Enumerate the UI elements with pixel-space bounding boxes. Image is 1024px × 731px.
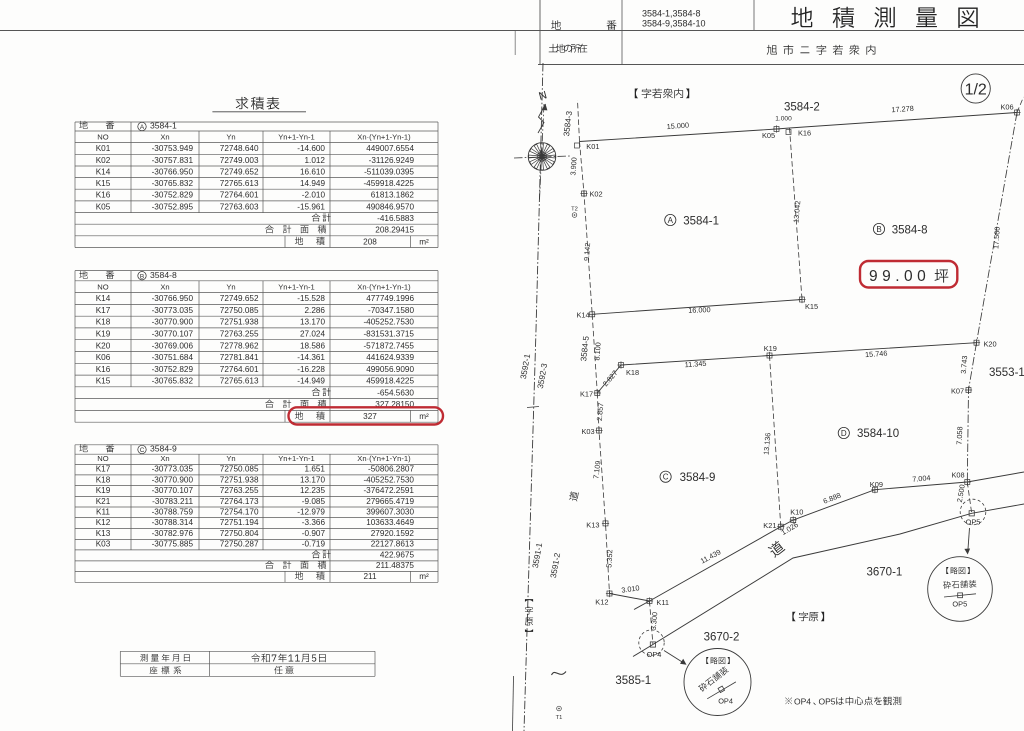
svg-text:K05: K05 — [96, 202, 111, 211]
svg-text:72781.841: 72781.841 — [220, 353, 259, 362]
svg-text:K01: K01 — [586, 142, 599, 151]
svg-text:-50806.2807: -50806.2807 — [368, 465, 414, 474]
svg-text:-459918.4225: -459918.4225 — [363, 179, 414, 188]
svg-text:72750.085: 72750.085 — [220, 465, 259, 474]
svg-text:OP5: OP5 — [952, 600, 967, 609]
svg-text:13.170: 13.170 — [300, 318, 325, 327]
svg-text:K03: K03 — [582, 427, 595, 436]
svg-text:16.610: 16.610 — [300, 167, 325, 176]
svg-text:-30782.976: -30782.976 — [152, 529, 194, 538]
svg-text:72764.173: 72764.173 — [220, 497, 259, 506]
svg-text:Xn: Xn — [160, 282, 169, 291]
svg-text:3.743: 3.743 — [959, 355, 970, 374]
svg-text:490846.9570: 490846.9570 — [366, 202, 414, 211]
svg-text:A: A — [140, 124, 145, 131]
svg-text:72751.938: 72751.938 — [220, 318, 259, 327]
svg-text:1.000: 1.000 — [775, 116, 792, 123]
svg-text:-30773.035: -30773.035 — [152, 465, 194, 474]
svg-text:3584-8: 3584-8 — [892, 225, 928, 237]
svg-text:K13: K13 — [586, 521, 599, 530]
svg-text:15.746: 15.746 — [865, 349, 888, 360]
svg-text:72778.962: 72778.962 — [220, 341, 259, 350]
svg-text:K17: K17 — [96, 465, 111, 474]
svg-text:Yn: Yn — [226, 132, 235, 141]
svg-text:-30775.885: -30775.885 — [152, 540, 194, 549]
svg-text:K19: K19 — [764, 344, 777, 353]
svg-text:3553-1: 3553-1 — [989, 367, 1024, 379]
svg-text:17.278: 17.278 — [891, 104, 914, 115]
svg-text:-654.5630: -654.5630 — [377, 388, 414, 397]
svg-text:-30752.829: -30752.829 — [152, 365, 194, 374]
svg-text:C: C — [140, 447, 145, 454]
svg-text:327: 327 — [363, 412, 377, 421]
svg-text:72749.652: 72749.652 — [220, 294, 259, 303]
svg-text:399607.3030: 399607.3030 — [366, 507, 414, 516]
svg-text:Xn·(Yn+1-Yn-1): Xn·(Yn+1-Yn-1) — [357, 454, 411, 463]
svg-text:72763.255: 72763.255 — [220, 330, 259, 339]
svg-text:72750.085: 72750.085 — [220, 306, 259, 315]
svg-text:72751.938: 72751.938 — [220, 475, 259, 484]
svg-text:-3.366: -3.366 — [302, 518, 326, 527]
svg-text:3.300: 3.300 — [649, 612, 660, 631]
svg-text:A: A — [668, 216, 674, 225]
svg-text:-16.228: -16.228 — [297, 365, 325, 374]
svg-text:K19: K19 — [96, 486, 111, 495]
svg-text:K18: K18 — [96, 318, 111, 327]
svg-text:2.286: 2.286 — [305, 306, 326, 315]
svg-text:3584-9: 3584-9 — [150, 444, 177, 454]
svg-text:-15.961: -15.961 — [297, 202, 325, 211]
svg-text:9.142: 9.142 — [582, 242, 592, 261]
svg-text:22127.8613: 22127.8613 — [371, 540, 415, 549]
svg-text:72764.601: 72764.601 — [220, 365, 259, 374]
svg-text:K14: K14 — [577, 311, 590, 320]
svg-text:K16: K16 — [96, 365, 111, 374]
svg-text:72765.613: 72765.613 — [220, 377, 259, 386]
svg-text:-2.010: -2.010 — [302, 191, 326, 200]
svg-text:K05: K05 — [762, 131, 775, 140]
svg-text:3584-2: 3584-2 — [784, 102, 820, 114]
svg-text:Yn+1-Yn-1: Yn+1-Yn-1 — [278, 454, 315, 463]
svg-text:3584-1,3584-8: 3584-1,3584-8 — [642, 9, 701, 19]
svg-text:Xn: Xn — [160, 132, 169, 141]
svg-text:K16: K16 — [798, 129, 811, 138]
svg-text:72764.601: 72764.601 — [220, 191, 259, 200]
svg-text:Xn·(Yn+1-Yn-1): Xn·(Yn+1-Yn-1) — [357, 282, 411, 291]
svg-text:208.29415: 208.29415 — [375, 226, 414, 235]
svg-text:459918.4225: 459918.4225 — [366, 377, 414, 386]
svg-text:2.857: 2.857 — [595, 402, 606, 421]
svg-text:Xn: Xn — [160, 454, 169, 463]
svg-text:-30769.006: -30769.006 — [152, 341, 194, 350]
svg-text:422.9675: 422.9675 — [380, 551, 415, 560]
svg-text:-15.528: -15.528 — [297, 294, 325, 303]
svg-text:72751.194: 72751.194 — [220, 518, 259, 527]
svg-text:3670-2: 3670-2 — [704, 632, 740, 644]
svg-text:3584-1: 3584-1 — [150, 120, 177, 130]
svg-text:-30770.900: -30770.900 — [152, 475, 194, 484]
svg-text:Yn: Yn — [226, 454, 235, 463]
svg-text:-70347.1580: -70347.1580 — [368, 306, 414, 315]
svg-text:15.000: 15.000 — [666, 121, 689, 132]
svg-text:-30770.107: -30770.107 — [152, 486, 194, 495]
svg-text:3584-9: 3584-9 — [680, 472, 716, 484]
svg-text:K06: K06 — [96, 353, 111, 362]
svg-text:K15: K15 — [96, 377, 111, 386]
svg-text:-416.5883: -416.5883 — [377, 214, 414, 223]
svg-text:K12: K12 — [595, 598, 608, 607]
svg-text:-30770.900: -30770.900 — [152, 318, 194, 327]
svg-text:12.235: 12.235 — [300, 486, 325, 495]
svg-text:103633.4649: 103633.4649 — [366, 518, 414, 527]
svg-text:m²: m² — [419, 237, 429, 246]
svg-text:-30773.035: -30773.035 — [152, 306, 194, 315]
svg-text:72765.613: 72765.613 — [220, 179, 259, 188]
svg-text:Yn+1-Yn-1: Yn+1-Yn-1 — [278, 282, 315, 291]
svg-text:K01: K01 — [96, 144, 111, 153]
svg-text:72754.170: 72754.170 — [220, 507, 259, 516]
svg-text:99.00: 99.00 — [869, 268, 930, 285]
svg-text:61813.1862: 61813.1862 — [371, 191, 415, 200]
svg-text:3670-1: 3670-1 — [867, 567, 903, 579]
svg-text:1/2: 1/2 — [965, 82, 987, 99]
svg-text:-30751.684: -30751.684 — [152, 353, 194, 362]
svg-text:K14: K14 — [96, 294, 111, 303]
svg-text:499056.9090: 499056.9090 — [366, 365, 414, 374]
svg-text:17.560: 17.560 — [991, 226, 1002, 249]
svg-text:-30757.831: -30757.831 — [152, 156, 194, 165]
svg-text:3584-9,3584-10: 3584-9,3584-10 — [642, 19, 706, 29]
svg-text:5.352: 5.352 — [604, 549, 614, 568]
svg-text:16.000: 16.000 — [688, 305, 711, 315]
svg-text:-511039.0395: -511039.0395 — [364, 167, 414, 176]
svg-text:K17: K17 — [580, 390, 593, 399]
svg-text:K15: K15 — [805, 302, 818, 311]
svg-text:T2: T2 — [571, 207, 578, 213]
svg-text:-571872.7455: -571872.7455 — [363, 341, 414, 350]
svg-text:27.024: 27.024 — [300, 330, 325, 339]
svg-text:K08: K08 — [952, 471, 965, 480]
svg-text:C: C — [663, 473, 669, 482]
svg-text:72750.287: 72750.287 — [220, 540, 259, 549]
svg-text:72749.003: 72749.003 — [220, 156, 259, 165]
svg-text:K12: K12 — [96, 518, 111, 527]
svg-text:3585-1: 3585-1 — [615, 675, 651, 687]
svg-text:K20: K20 — [96, 341, 111, 350]
svg-text:B: B — [140, 274, 144, 281]
svg-text:OP4: OP4 — [718, 696, 733, 705]
svg-text:-30752.895: -30752.895 — [152, 202, 194, 211]
svg-text:-30788.314: -30788.314 — [152, 518, 194, 527]
svg-text:K13: K13 — [96, 529, 111, 538]
svg-text:72750.804: 72750.804 — [220, 529, 259, 538]
svg-text:-376472.2591: -376472.2591 — [363, 486, 414, 495]
svg-text:NO: NO — [97, 282, 108, 291]
svg-text:Xn·(Yn+1-Yn-1): Xn·(Yn+1-Yn-1) — [357, 132, 411, 141]
svg-text:3584-8: 3584-8 — [150, 270, 177, 280]
svg-text:m²: m² — [419, 572, 429, 581]
svg-text:441624.9339: 441624.9339 — [366, 353, 414, 362]
svg-text:72763.603: 72763.603 — [220, 202, 259, 211]
svg-text:K10: K10 — [790, 508, 803, 517]
svg-text:208: 208 — [363, 237, 377, 246]
svg-text:8.100: 8.100 — [592, 342, 602, 361]
svg-text:OP5: OP5 — [966, 518, 981, 527]
svg-text:211: 211 — [363, 572, 376, 581]
svg-text:3584-1: 3584-1 — [683, 215, 719, 227]
svg-text:27920.1592: 27920.1592 — [371, 529, 415, 538]
svg-text:-30753.949: -30753.949 — [152, 144, 194, 153]
svg-text:3584-10: 3584-10 — [857, 428, 899, 440]
svg-text:-30765.832: -30765.832 — [152, 179, 194, 188]
svg-text:-30766.950: -30766.950 — [152, 167, 194, 176]
svg-text:K18: K18 — [96, 475, 111, 484]
svg-text:7.058: 7.058 — [955, 426, 965, 445]
svg-text:Yn+1-Yn-1: Yn+1-Yn-1 — [278, 132, 315, 141]
svg-text:-30770.107: -30770.107 — [152, 330, 194, 339]
svg-text:K15: K15 — [96, 179, 111, 188]
svg-text:D: D — [841, 429, 847, 438]
svg-text:477749.1996: 477749.1996 — [366, 294, 414, 303]
svg-text:OP4: OP4 — [647, 650, 662, 659]
svg-text:K06: K06 — [1001, 103, 1014, 112]
svg-text:K21: K21 — [763, 521, 776, 530]
svg-text:NO: NO — [97, 454, 108, 463]
svg-text:3.900: 3.900 — [568, 157, 578, 176]
svg-text:449007.6554: 449007.6554 — [366, 144, 414, 153]
svg-text:K18: K18 — [626, 368, 639, 377]
svg-text:-9.085: -9.085 — [302, 497, 326, 506]
svg-text:-30788.759: -30788.759 — [152, 507, 194, 516]
svg-text:K07: K07 — [951, 387, 964, 396]
svg-text:14.949: 14.949 — [300, 179, 325, 188]
svg-text:Yn: Yn — [226, 282, 235, 291]
svg-text:72748.640: 72748.640 — [220, 144, 259, 153]
svg-text:279665.4719: 279665.4719 — [366, 497, 414, 506]
svg-text:K03: K03 — [96, 540, 111, 549]
svg-text:-12.979: -12.979 — [297, 507, 325, 516]
svg-text:11.345: 11.345 — [684, 359, 706, 369]
svg-text:T1: T1 — [556, 715, 563, 721]
svg-text:K02: K02 — [96, 156, 111, 165]
svg-text:K20: K20 — [984, 340, 997, 349]
svg-text:18.586: 18.586 — [300, 341, 325, 350]
svg-text:-14.949: -14.949 — [297, 377, 325, 386]
svg-text:72763.255: 72763.255 — [220, 486, 259, 495]
svg-text:K14: K14 — [96, 167, 111, 176]
svg-text:m²: m² — [419, 412, 429, 421]
svg-text:-405252.7530: -405252.7530 — [363, 318, 414, 327]
svg-text:-405252.7530: -405252.7530 — [363, 475, 414, 484]
svg-text:-30752.829: -30752.829 — [152, 191, 194, 200]
svg-text:-831531.3715: -831531.3715 — [363, 330, 414, 339]
svg-text:72749.652: 72749.652 — [220, 167, 259, 176]
svg-text:211.48375: 211.48375 — [376, 561, 415, 570]
svg-text:NO: NO — [97, 132, 108, 141]
svg-text:K11: K11 — [656, 598, 669, 607]
svg-text:K16: K16 — [96, 191, 111, 200]
svg-text:-31126.9249: -31126.9249 — [369, 156, 415, 165]
svg-text:K02: K02 — [590, 190, 603, 199]
svg-text:OP4: OP4 — [794, 697, 811, 707]
svg-text:K17: K17 — [96, 306, 111, 315]
svg-text:-14.361: -14.361 — [297, 353, 325, 362]
svg-text:-30783.211: -30783.211 — [152, 497, 193, 506]
svg-text:7.004: 7.004 — [912, 473, 931, 484]
svg-text:-0.907: -0.907 — [302, 529, 326, 538]
svg-text:1.012: 1.012 — [305, 156, 326, 165]
svg-text:K19: K19 — [96, 330, 111, 339]
svg-text:K21: K21 — [96, 497, 111, 506]
svg-text:-14.600: -14.600 — [297, 144, 325, 153]
svg-text:-30766.950: -30766.950 — [152, 294, 194, 303]
svg-text:B: B — [876, 225, 881, 234]
svg-text:13.170: 13.170 — [300, 475, 325, 484]
svg-text:-30765.832: -30765.832 — [152, 377, 194, 386]
svg-text:-0.719: -0.719 — [302, 540, 326, 549]
svg-text:OP5: OP5 — [819, 697, 836, 707]
svg-text:K11: K11 — [96, 507, 110, 516]
svg-text:1.651: 1.651 — [305, 465, 326, 474]
svg-text:K09: K09 — [870, 480, 883, 489]
